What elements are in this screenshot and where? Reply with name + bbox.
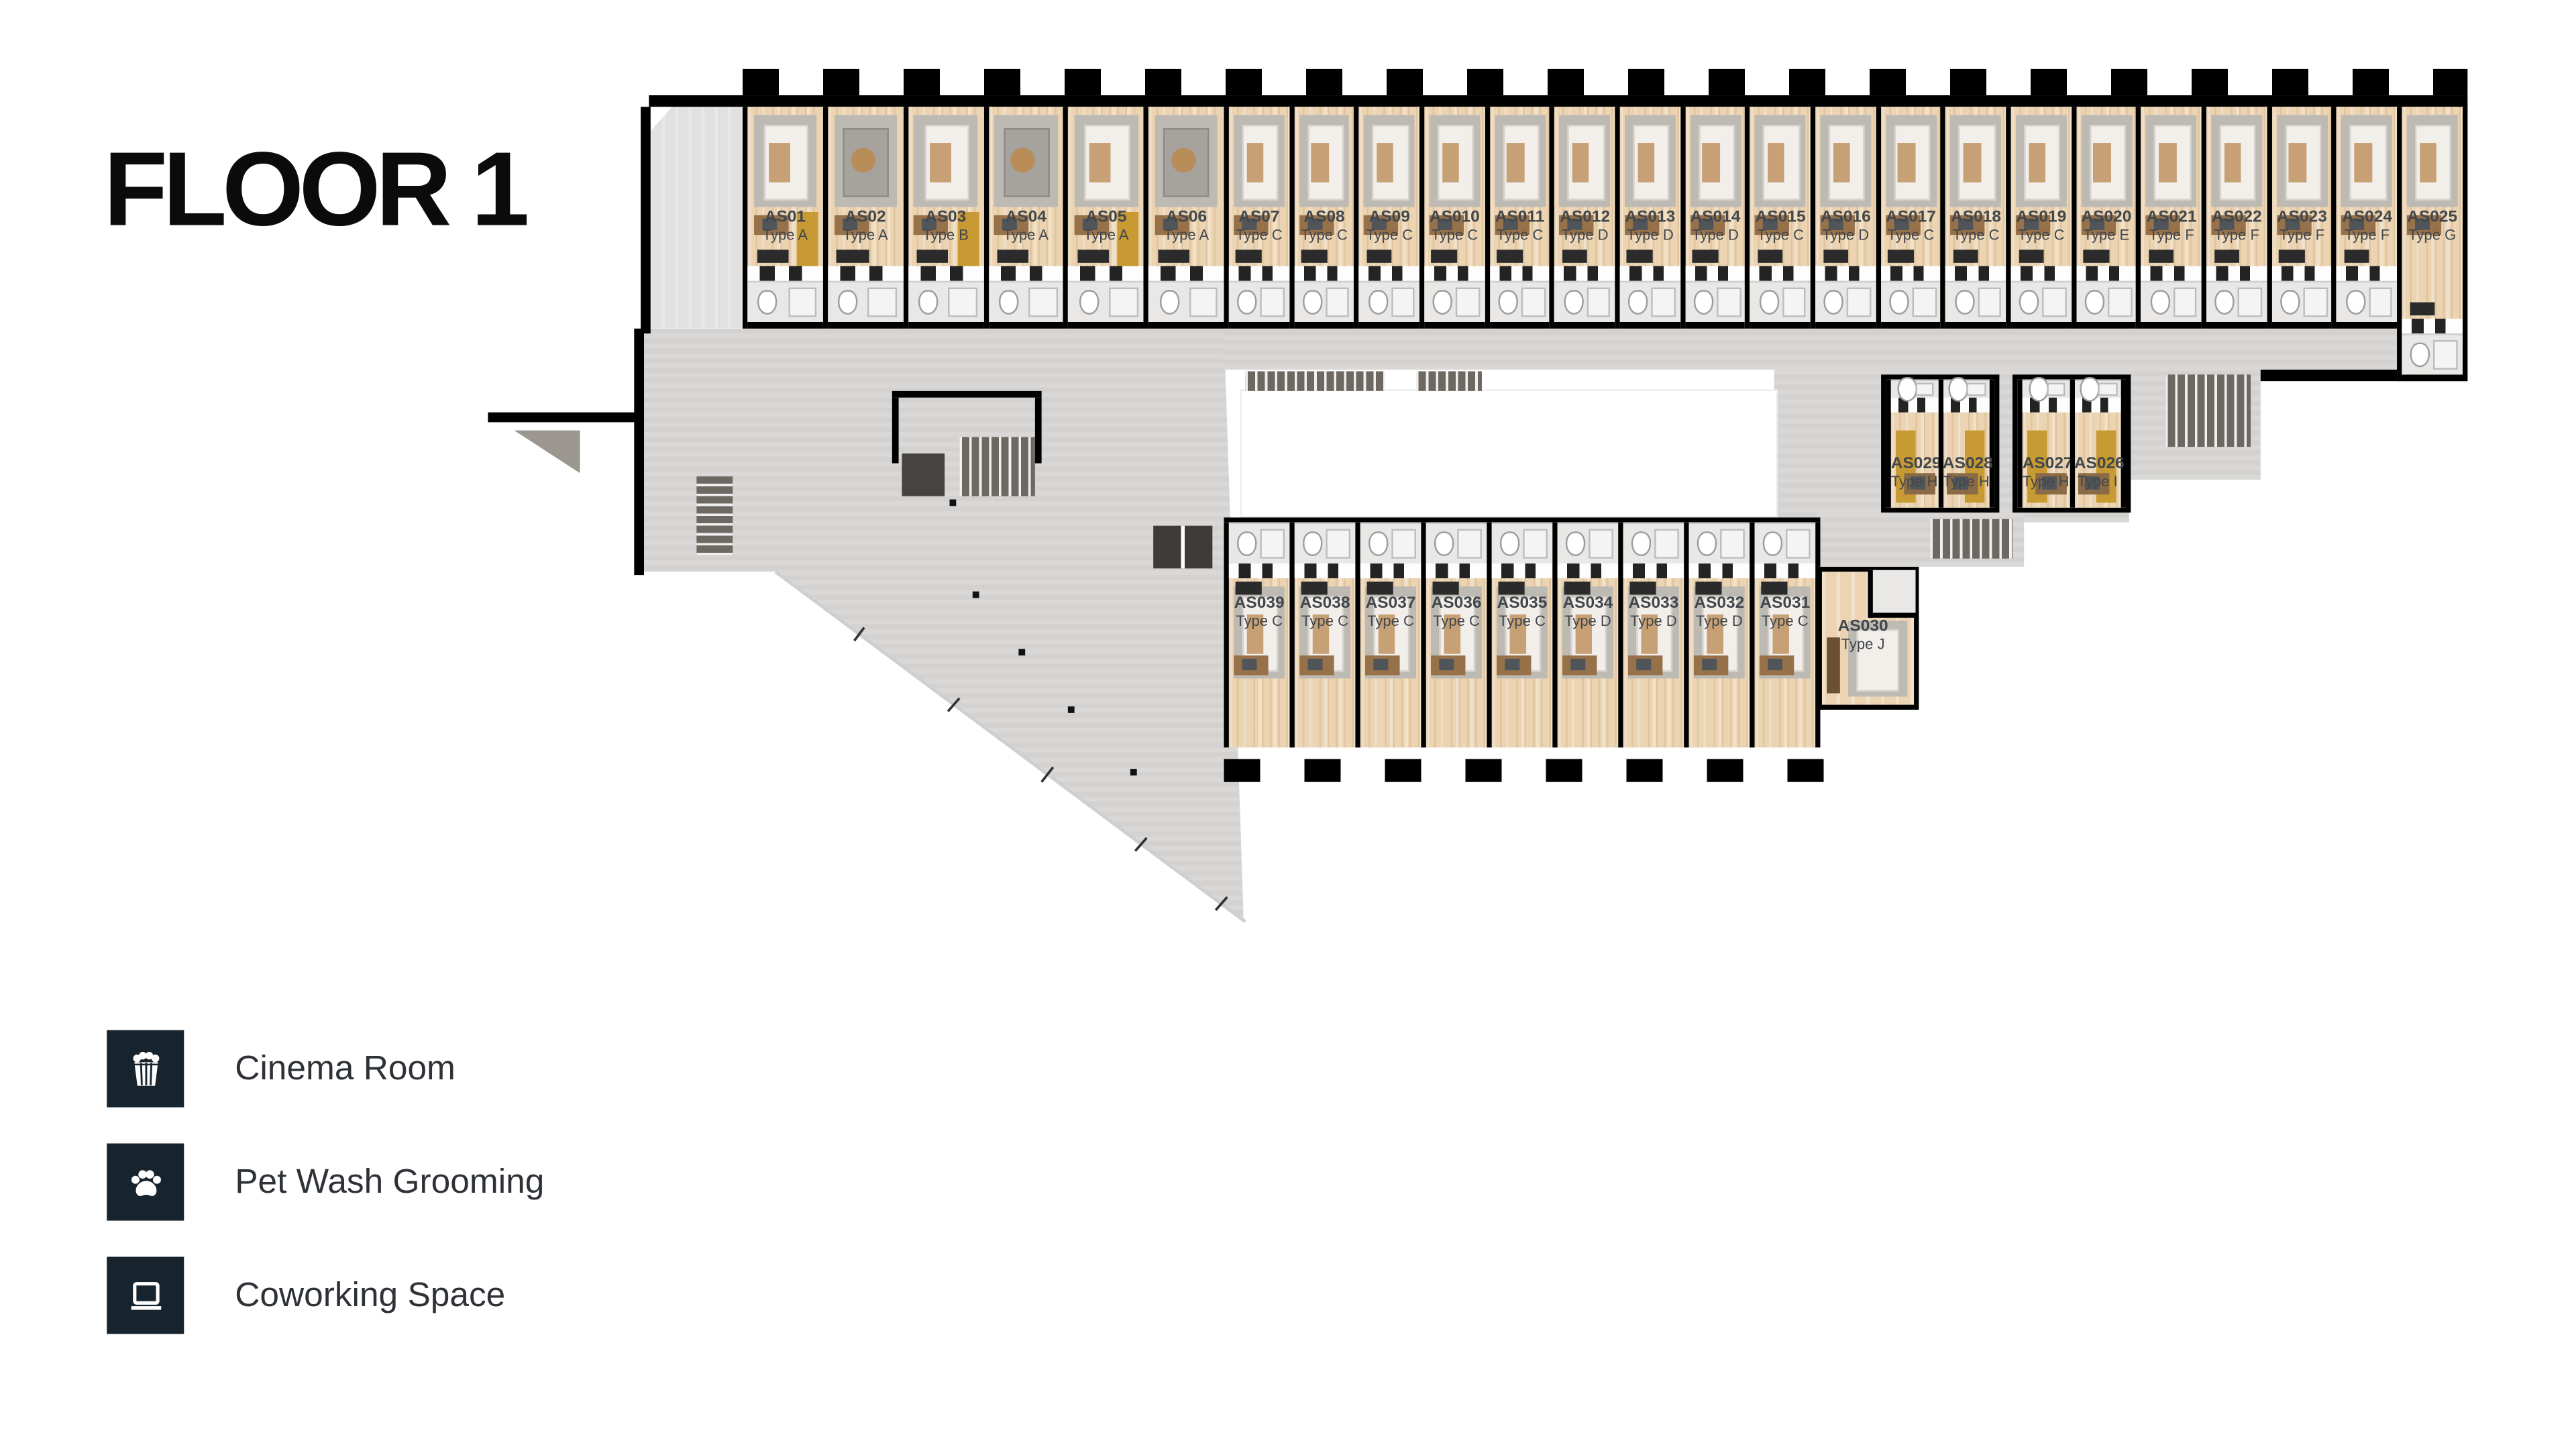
kitchen-counter xyxy=(1943,398,1990,413)
bed xyxy=(2285,125,2322,201)
desk xyxy=(1886,215,1920,235)
shower xyxy=(1587,287,1610,317)
bed xyxy=(1698,125,1735,201)
bathroom xyxy=(1946,266,2006,329)
unit-AS035: AS035Type C xyxy=(1487,523,1552,748)
kitchenette xyxy=(1888,250,1913,263)
cinema-swatch xyxy=(107,1030,184,1108)
bathroom xyxy=(1359,266,1419,329)
bath-tile xyxy=(1424,281,1485,322)
rug xyxy=(1886,115,1936,207)
legend-label: Coworking Space xyxy=(235,1276,505,1316)
bed xyxy=(1633,125,1670,201)
bath-tile xyxy=(1815,281,1876,322)
desk xyxy=(1694,655,1728,675)
shower xyxy=(1189,287,1218,317)
bathroom xyxy=(2271,266,2332,329)
rug xyxy=(1690,115,1740,207)
unit-AS016: AS016Type D xyxy=(1811,107,1876,329)
unit-AS031: AS031Type C xyxy=(1750,523,1820,748)
kitchen-counter xyxy=(2402,319,2463,333)
unit-AS08: AS08Type C xyxy=(1289,107,1354,329)
coffee-table xyxy=(850,148,875,172)
kitchenette xyxy=(2214,250,2239,263)
desk xyxy=(1234,655,1268,675)
bathroom xyxy=(1881,266,1941,329)
bath-tile xyxy=(2337,281,2398,322)
kitchenette xyxy=(757,250,788,263)
bath-tile xyxy=(1294,281,1354,322)
shower xyxy=(1326,287,1349,317)
bath-tile xyxy=(1755,523,1816,563)
desk xyxy=(1903,473,1935,494)
unit-AS028: AS028Type H xyxy=(1938,380,1994,508)
rug xyxy=(2016,115,2066,207)
bathroom xyxy=(1891,380,1938,413)
kitchenette xyxy=(2019,250,2044,263)
shower xyxy=(1392,529,1416,559)
bed xyxy=(1848,621,1907,697)
desk xyxy=(1760,655,1794,675)
bathroom xyxy=(988,266,1063,329)
rug xyxy=(753,115,816,207)
desk xyxy=(2035,473,2066,494)
bed xyxy=(1373,125,1409,201)
bathroom xyxy=(1620,266,1680,329)
shower xyxy=(1521,287,1545,317)
toilet xyxy=(2150,290,2169,315)
bathroom xyxy=(747,266,822,329)
shower xyxy=(1260,287,1284,317)
desk xyxy=(1755,215,1789,235)
desk xyxy=(1821,215,1855,235)
kitchenette xyxy=(2410,303,2435,316)
unit-AS013: AS013Type D xyxy=(1615,107,1680,329)
desk xyxy=(2277,215,2311,235)
kitchen-counter xyxy=(1685,266,1746,281)
kitchenette xyxy=(1497,250,1522,263)
elevator-core xyxy=(902,453,945,496)
toilet xyxy=(1763,531,1782,556)
bathroom xyxy=(1295,523,1356,578)
bed xyxy=(1503,125,1540,201)
unit-AS024: AS024Type F xyxy=(2332,107,2397,329)
kitchen-counter xyxy=(1815,266,1876,281)
desk xyxy=(1951,215,1985,235)
corridor-top xyxy=(1224,329,2467,370)
unit-AS019: AS019Type C xyxy=(2006,107,2072,329)
desk xyxy=(1495,215,1529,235)
unit-AS05: AS05Type A xyxy=(1063,107,1144,329)
shower xyxy=(1109,287,1138,317)
rug xyxy=(1951,115,2001,207)
kitchenette xyxy=(1434,582,1459,595)
bath-tile xyxy=(828,281,903,322)
rug xyxy=(2211,115,2261,207)
bathroom xyxy=(1815,266,1876,329)
kitchenette xyxy=(1301,250,1327,263)
kitchen-counter xyxy=(1755,563,1816,578)
toilet xyxy=(2019,290,2039,315)
unit-AS02: AS02Type A xyxy=(823,107,904,329)
shower xyxy=(1913,287,1936,317)
bathroom xyxy=(1623,523,1684,578)
desk xyxy=(994,215,1028,235)
shower xyxy=(1456,287,1480,317)
sofa xyxy=(957,212,979,271)
legend-item-pet-wash: Pet Wash Grooming xyxy=(107,1143,544,1220)
rug xyxy=(1299,115,1349,207)
toilet xyxy=(2280,290,2300,315)
unit-AS030: AS030Type J xyxy=(1817,567,1919,710)
kitchenette xyxy=(1693,250,1718,263)
toilet xyxy=(1303,290,1322,315)
rug xyxy=(2342,115,2392,207)
unit-AS029: AS029Type H xyxy=(1886,380,1937,508)
legend: Cinema Room Pet Wash Grooming xyxy=(107,1030,544,1371)
kitchenette xyxy=(1762,582,1787,595)
bathroom xyxy=(1755,523,1816,578)
bath-tile xyxy=(747,281,822,322)
desk xyxy=(1690,215,1724,235)
kitchenette xyxy=(2344,250,2369,263)
bed xyxy=(2024,125,2061,201)
shower xyxy=(2098,383,2117,396)
kitchenette xyxy=(2084,250,2109,263)
bathroom xyxy=(908,266,983,329)
kitchenette xyxy=(2279,250,2304,263)
shower xyxy=(868,287,897,317)
rug xyxy=(1560,115,1610,207)
kitchenette xyxy=(1432,250,1457,263)
rug xyxy=(1495,115,1545,207)
courtyard-void xyxy=(1240,389,1778,517)
site-boundary-diagonal xyxy=(723,542,1282,953)
kitchen-counter xyxy=(1555,266,1615,281)
kitchen-counter xyxy=(747,266,822,281)
kitchenette xyxy=(1368,582,1393,595)
bath-tile xyxy=(1360,523,1421,563)
shower xyxy=(2046,383,2065,396)
desk xyxy=(1155,215,1189,235)
kitchenette xyxy=(1236,582,1262,595)
legend-item-coworking: Coworking Space xyxy=(107,1256,544,1334)
toilet xyxy=(1694,290,1713,315)
desk xyxy=(1430,215,1464,235)
bath-tile xyxy=(1881,281,1941,322)
bathroom xyxy=(1558,523,1619,578)
toilet xyxy=(1368,290,1387,315)
kitchenette xyxy=(1366,250,1392,263)
bed xyxy=(2154,125,2191,201)
kitchenette xyxy=(837,250,868,263)
rug xyxy=(1755,115,1805,207)
legend-label: Cinema Room xyxy=(235,1049,455,1089)
kitchen-counter xyxy=(2337,266,2398,281)
desk xyxy=(2211,215,2245,235)
shower xyxy=(1721,529,1745,559)
shower xyxy=(1967,383,1986,396)
kitchen-counter xyxy=(1490,266,1550,281)
kitchenette xyxy=(1696,582,1721,595)
bath-tile xyxy=(1148,281,1224,322)
kitchenette xyxy=(998,250,1029,263)
kitchen-counter xyxy=(1623,563,1684,578)
bath-tile xyxy=(2076,281,2137,322)
unit-AS06: AS06Type A xyxy=(1144,107,1224,329)
rug xyxy=(2277,115,2327,207)
toilet xyxy=(1759,290,1778,315)
bath-tile xyxy=(1685,281,1746,322)
kitchen-counter xyxy=(1689,563,1750,578)
bed xyxy=(1242,125,1279,201)
shower xyxy=(2173,287,2196,317)
laptop-icon xyxy=(122,1273,168,1319)
kitchenette xyxy=(1499,582,1525,595)
unit-AS04: AS04Type A xyxy=(983,107,1064,329)
bathroom xyxy=(1229,523,1290,578)
unit-AS020: AS020Type E xyxy=(2072,107,2137,329)
bathroom xyxy=(2011,266,2072,329)
kitchen-counter xyxy=(1229,266,1289,281)
desk xyxy=(2078,473,2109,494)
desk xyxy=(1625,215,1659,235)
bathroom xyxy=(2206,266,2267,329)
kitchenette xyxy=(1953,250,1978,263)
entrance-lobby xyxy=(649,107,743,329)
desk xyxy=(1234,215,1268,235)
kitchen-counter xyxy=(2206,266,2267,281)
unit-row-top: AS01Type AAS02Type AAS03Type BAS04Type A… xyxy=(743,107,2467,329)
toilet xyxy=(1079,290,1098,315)
unit-AS017: AS017Type C xyxy=(1876,107,1941,329)
bed xyxy=(2220,125,2257,201)
internal-wall xyxy=(892,391,1042,398)
shower xyxy=(2239,287,2262,317)
toilet xyxy=(758,290,777,315)
desk xyxy=(2342,215,2376,235)
bathroom xyxy=(1424,266,1485,329)
shower xyxy=(1915,383,1934,396)
bath-tile xyxy=(1229,523,1290,563)
rug xyxy=(1430,115,1480,207)
bath-tile xyxy=(2141,281,2202,322)
kitchenette xyxy=(2149,250,2174,263)
sofa xyxy=(796,212,818,271)
desk xyxy=(753,215,788,235)
bed xyxy=(1568,125,1605,201)
bath-tile xyxy=(2206,281,2267,322)
shower xyxy=(2304,287,2327,317)
bed xyxy=(1763,125,1800,201)
bathroom xyxy=(2023,380,2070,413)
rug xyxy=(994,115,1057,207)
kitchenette xyxy=(1236,250,1262,263)
bed xyxy=(1085,125,1130,201)
bathroom xyxy=(1750,266,1811,329)
desk xyxy=(1364,215,1398,235)
shower xyxy=(1978,287,2001,317)
shower xyxy=(1786,529,1811,559)
desk xyxy=(1628,655,1662,675)
shower xyxy=(2043,287,2066,317)
shower xyxy=(1847,287,1871,317)
kitchenette xyxy=(1302,582,1328,595)
wall-entrance xyxy=(488,413,641,423)
unit-AS026: AS026Type I xyxy=(2069,380,2125,508)
kitchenette xyxy=(1823,250,1848,263)
bath-tile xyxy=(1750,281,1811,322)
desk xyxy=(1562,655,1597,675)
internal-wall xyxy=(892,398,899,464)
bathroom xyxy=(1426,523,1487,578)
kitchenette xyxy=(1562,250,1588,263)
desk xyxy=(1365,655,1399,675)
bathroom xyxy=(1685,266,1746,329)
kitchen-counter xyxy=(1946,266,2006,281)
desk xyxy=(1497,655,1531,675)
bathroom xyxy=(1868,570,1915,618)
unit-cluster-right: AS027Type HAS026Type I xyxy=(2012,374,2131,513)
unit-AS01: AS01Type A xyxy=(743,107,823,329)
unit-AS011: AS011Type C xyxy=(1485,107,1550,329)
desk xyxy=(1560,215,1594,235)
desk xyxy=(914,215,948,235)
bath-tile xyxy=(1069,281,1144,322)
bathroom xyxy=(1943,380,1990,413)
kitchen-counter xyxy=(1229,563,1290,578)
bed xyxy=(1307,125,1344,201)
shower xyxy=(1391,287,1415,317)
kitchenette xyxy=(1630,582,1656,595)
column xyxy=(950,499,957,506)
bathroom xyxy=(1492,523,1553,578)
shower xyxy=(1458,529,1482,559)
unit-AS036: AS036Type C xyxy=(1421,523,1487,748)
bath-tile xyxy=(1295,523,1356,563)
toilet xyxy=(1824,290,1843,315)
bath-tile xyxy=(1943,380,1990,398)
kitchen-counter xyxy=(1558,563,1619,578)
unit-AS034: AS034Type D xyxy=(1552,523,1618,748)
shower xyxy=(1589,529,1613,559)
toilet xyxy=(1500,531,1519,556)
unit-row-bottom: AS039Type CAS038Type CAS037Type CAS036Ty… xyxy=(1224,517,1820,747)
kitchen-counter xyxy=(1426,563,1487,578)
bath-tile xyxy=(1558,523,1619,563)
bed xyxy=(1894,125,1931,201)
toilet xyxy=(1889,290,1909,315)
coworking-swatch xyxy=(107,1256,184,1334)
rug xyxy=(1075,115,1138,207)
toilet xyxy=(2410,343,2430,368)
kitchen-counter xyxy=(1620,266,1680,281)
rug xyxy=(2146,115,2196,207)
desk xyxy=(1299,655,1334,675)
kitchen-counter xyxy=(2011,266,2072,281)
kitchen-counter xyxy=(1492,563,1553,578)
kitchen-counter xyxy=(2271,266,2332,281)
desk xyxy=(2081,215,2115,235)
wardrobe xyxy=(1827,637,1840,693)
bathroom xyxy=(1689,523,1750,578)
shower xyxy=(788,287,817,317)
toilet xyxy=(1563,290,1582,315)
toilet xyxy=(1368,531,1388,556)
toilet xyxy=(1631,531,1651,556)
bath-tile xyxy=(1623,523,1684,563)
toilet xyxy=(1628,290,1648,315)
toilet xyxy=(2345,290,2365,315)
coffee-table xyxy=(1171,148,1196,172)
unit-AS023: AS023Type F xyxy=(2267,107,2332,329)
kitchenette xyxy=(917,250,949,263)
kitchen-counter xyxy=(1359,266,1419,281)
shower xyxy=(2434,340,2457,370)
unit-AS032: AS032Type D xyxy=(1684,523,1750,748)
staircase-as030 xyxy=(1931,519,2012,559)
kitchen-counter xyxy=(1148,266,1224,281)
bathroom xyxy=(1069,266,1144,329)
toilet xyxy=(839,290,858,315)
wall-left-common xyxy=(634,329,644,575)
bath-tile xyxy=(2011,281,2072,322)
balcony-fins-bottom xyxy=(1224,759,1828,782)
unit-AS038: AS038Type C xyxy=(1289,523,1355,748)
bath-tile xyxy=(1229,281,1289,322)
rug xyxy=(1155,115,1218,207)
rug xyxy=(2081,115,2131,207)
desk xyxy=(1299,215,1333,235)
unit-AS010: AS010Type C xyxy=(1419,107,1485,329)
staircase-right xyxy=(2165,374,2251,447)
unit-AS033: AS033Type D xyxy=(1618,523,1684,748)
kitchenette xyxy=(1565,582,1591,595)
desk xyxy=(2016,215,2050,235)
bathroom xyxy=(2076,266,2137,329)
floor-plan-page: FLOOR 1 xyxy=(0,0,2576,1449)
kitchen-counter xyxy=(1360,563,1421,578)
bathroom xyxy=(2074,380,2121,413)
bed xyxy=(763,125,808,201)
toilet xyxy=(999,290,1018,315)
shower xyxy=(1655,529,1679,559)
bath-tile xyxy=(2271,281,2332,322)
rug xyxy=(1234,115,1284,207)
toilet xyxy=(918,290,938,315)
bath-tile xyxy=(1689,523,1750,563)
bath-tile xyxy=(2074,380,2121,398)
bathroom xyxy=(828,266,903,329)
unit-AS07: AS07Type C xyxy=(1224,107,1289,329)
shower xyxy=(1652,287,1675,317)
toilet xyxy=(1566,531,1585,556)
vent-grille xyxy=(1245,371,1385,390)
wall-left-lobby xyxy=(641,107,651,333)
shower xyxy=(1782,287,1805,317)
unit-cluster-left: AS029Type HAS028Type H xyxy=(1881,374,1999,513)
kitchen-counter xyxy=(908,266,983,281)
pet-wash-swatch xyxy=(107,1143,184,1220)
staircase-center xyxy=(959,437,1035,496)
rug xyxy=(1821,115,1871,207)
bathroom xyxy=(1360,523,1421,578)
unit-AS027: AS027Type H xyxy=(2017,380,2069,508)
wall-top xyxy=(649,95,2467,107)
rug xyxy=(834,115,897,207)
bath-tile xyxy=(1490,281,1550,322)
vent-grille xyxy=(1416,371,1482,390)
